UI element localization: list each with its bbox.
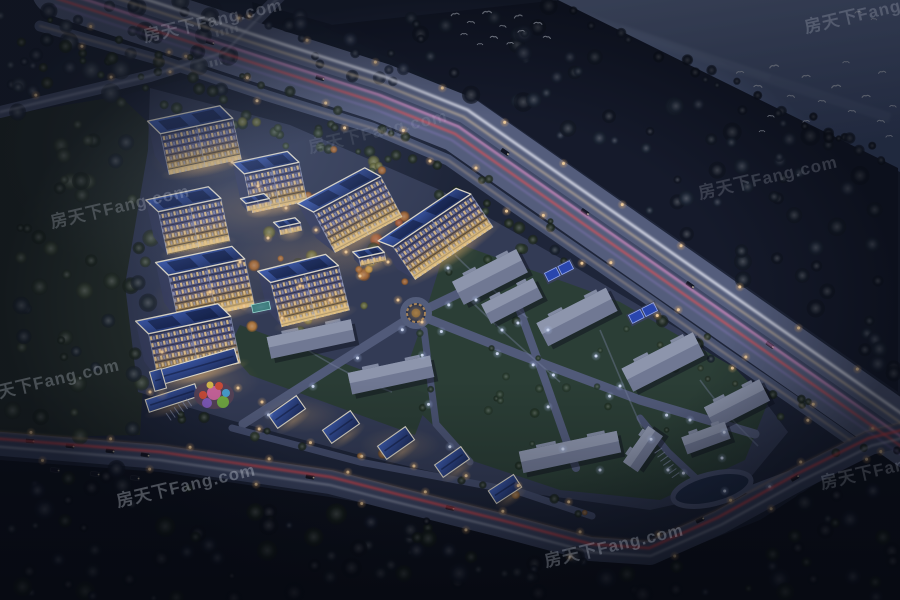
vignette <box>0 0 900 600</box>
scene-svg: 房天下Fang.com房天下Fang.com房天下Fang.com房天下Fang… <box>0 0 900 600</box>
aerial-night-rendering: 房天下Fang.com房天下Fang.com房天下Fang.com房天下Fang… <box>0 0 900 600</box>
atmosphere-layer <box>0 0 900 600</box>
